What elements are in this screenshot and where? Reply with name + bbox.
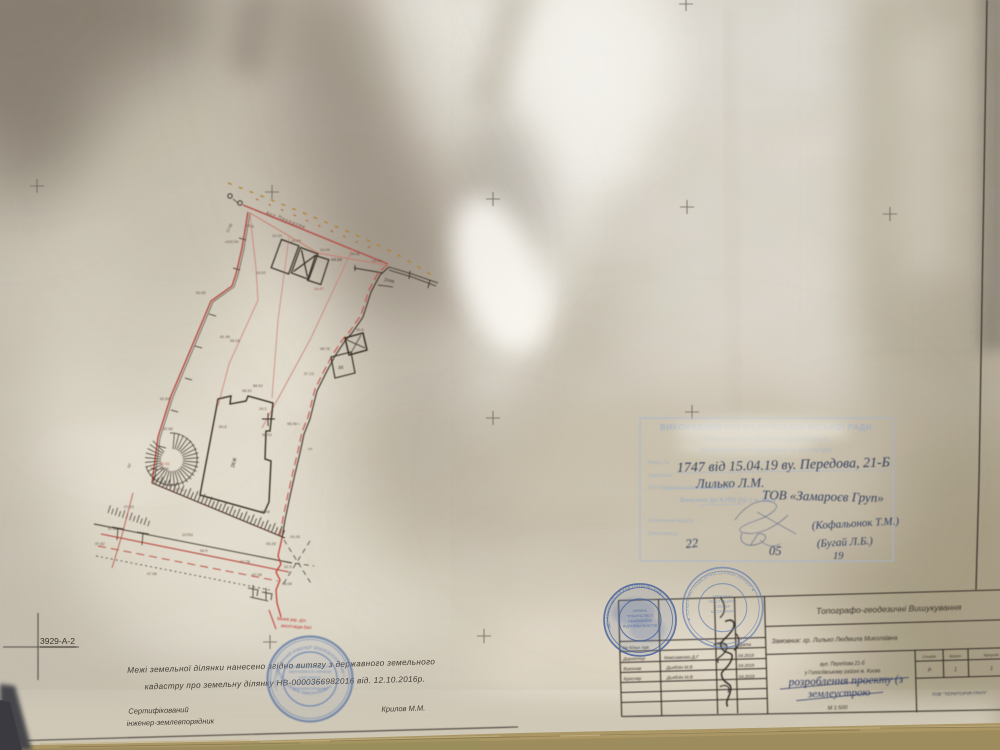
svg-text:1: 1 [990,666,993,672]
svg-text:22: 22 [685,536,699,551]
svg-text:07.23: 07.23 [304,371,314,376]
svg-text:07.78: 07.78 [240,559,250,564]
svg-text:63.85: 63.85 [196,290,206,295]
svg-text:04.2019: 04.2019 [738,653,755,658]
svg-text:02.9: 02.9 [284,564,292,569]
svg-text:3929-А-2: 3929-А-2 [40,636,75,646]
svg-text:98.76: 98.76 [320,346,330,351]
svg-text:М 1:500: М 1:500 [828,705,849,712]
svg-text:РЕЄСТРАЦІЙНА: РЕЄСТРАЦІЙНА [709,599,738,604]
svg-text:98.53: 98.53 [262,432,272,437]
svg-text:Крилов М.М.: Крилов М.М. [381,704,425,714]
svg-text:96.52: 96.52 [242,388,252,393]
svg-text:Виконав: Виконав [623,666,642,672]
svg-text:УКРАЇНА: УКРАЇНА [633,609,648,613]
svg-text:14.02: 14.02 [256,270,266,275]
svg-text:10763: 10763 [182,532,193,537]
svg-text:99.26: 99.26 [230,338,240,343]
svg-text:98.08: 98.08 [282,581,292,586]
svg-text:ДЕРЖАВНИЙ КАДАСТР: ДЕРЖАВНИЙ КАДАСТР [290,665,331,669]
svg-text:24.46: 24.46 [350,251,360,256]
svg-text:СЛУЖБА: СЛУЖБА [715,604,731,608]
svg-text:55.8: 55.8 [356,327,364,332]
svg-text:44.64: 44.64 [331,257,343,262]
svg-text:14.10: 14.10 [272,233,283,238]
svg-text:Кресляр: Кресляр [624,676,642,682]
svg-text:Лилько Л.М.: Лилько Л.М. [695,475,765,491]
svg-text:19: 19 [833,551,844,562]
svg-text:Зб: Зб [338,365,344,370]
svg-text:Вихід №: Вихід № [648,460,669,466]
svg-text:ТОВАРИСТВО З: ТОВАРИСТВО З [627,614,653,619]
svg-text:84.8: 84.8 [219,424,227,429]
svg-text:Максименко Д.Г: Максименко Д.Г [664,654,699,660]
svg-text:Дьяблін М.В: Дьяблін М.В [665,665,692,671]
svg-text:92.86: 92.86 [163,426,173,431]
svg-text:14.44: 14.44 [320,247,331,252]
svg-text:05.28: 05.28 [266,541,276,546]
svg-text:СЕРТИФІКАТ: СЕРТИФІКАТ [299,676,322,680]
svg-text:07.63: 07.63 [124,504,134,509]
svg-text:землеустрою: землеустрою [807,687,871,701]
svg-text:24.28: 24.28 [290,534,300,539]
svg-text:95.48: 95.48 [260,509,270,514]
svg-text:9068: 9068 [160,466,169,471]
svg-text:Начальник відділу: Начальник відділу [648,518,694,524]
svg-text:•102.94: •102.94 [225,239,239,244]
svg-text:97.82: 97.82 [95,541,105,546]
svg-text:24.2: 24.2 [259,406,267,411]
svg-text:Сертифікований: Сертифікований [128,705,189,716]
svg-text:04.2019: 04.2019 [739,674,756,679]
svg-text:61.48: 61.48 [220,334,230,339]
svg-text:Стадія: Стадія [922,654,937,659]
svg-text:14.42: 14.42 [372,258,382,263]
svg-text:14.47: 14.47 [314,286,324,291]
svg-text:97.83: 97.83 [108,526,118,531]
svg-text:Аркуш: Аркуш [948,653,962,658]
svg-text:вул. Передова 21-б: вул. Передова 21-б [820,661,865,668]
svg-text:07.08: 07.08 [252,572,262,577]
svg-text:МІСТА КИЄВА: МІСТА КИЄВА [711,609,736,614]
svg-text:Виконавець: Виконавець [648,531,678,537]
svg-text:бн: бн [126,463,132,468]
svg-text:04.2019: 04.2019 [738,663,755,668]
svg-text:НЕРУХОМОСТІ УКРАЇНИ: НЕРУХОМОСТІ УКРАЇНИ [289,670,332,674]
svg-text:07.75: 07.75 [174,487,184,492]
svg-text:1: 1 [954,667,957,673]
svg-text:62.84: 62.84 [160,396,171,401]
svg-text:сл: сл [308,446,312,451]
svg-text:Аркушів: Аркушів [983,652,999,657]
svg-text:88.52: 88.52 [253,383,263,388]
svg-text:Дьяблін М.В: Дьяблін М.В [666,675,693,681]
svg-text:54.9: 54.9 [200,548,208,553]
svg-text:ОБМЕЖЕНОЮ: ОБМЕЖЕНОЮ [628,619,653,624]
svg-text:24.04: 24.04 [291,238,302,243]
svg-text:123456 СЕРІЯ АБ: 123456 СЕРІЯ АБ [295,681,325,685]
svg-text:Замовник: Замовник [648,473,673,479]
svg-text:98.08 •: 98.08 • [287,421,300,426]
svg-text:ДЕРЖАВНА: ДЕРЖАВНА [712,594,733,599]
svg-text:07.98: 07.98 [147,571,157,576]
svg-text:ТОВ «Замароєв Груп»: ТОВ «Замароєв Груп» [762,487,884,505]
svg-text:пб.д: пб.д [246,223,254,228]
